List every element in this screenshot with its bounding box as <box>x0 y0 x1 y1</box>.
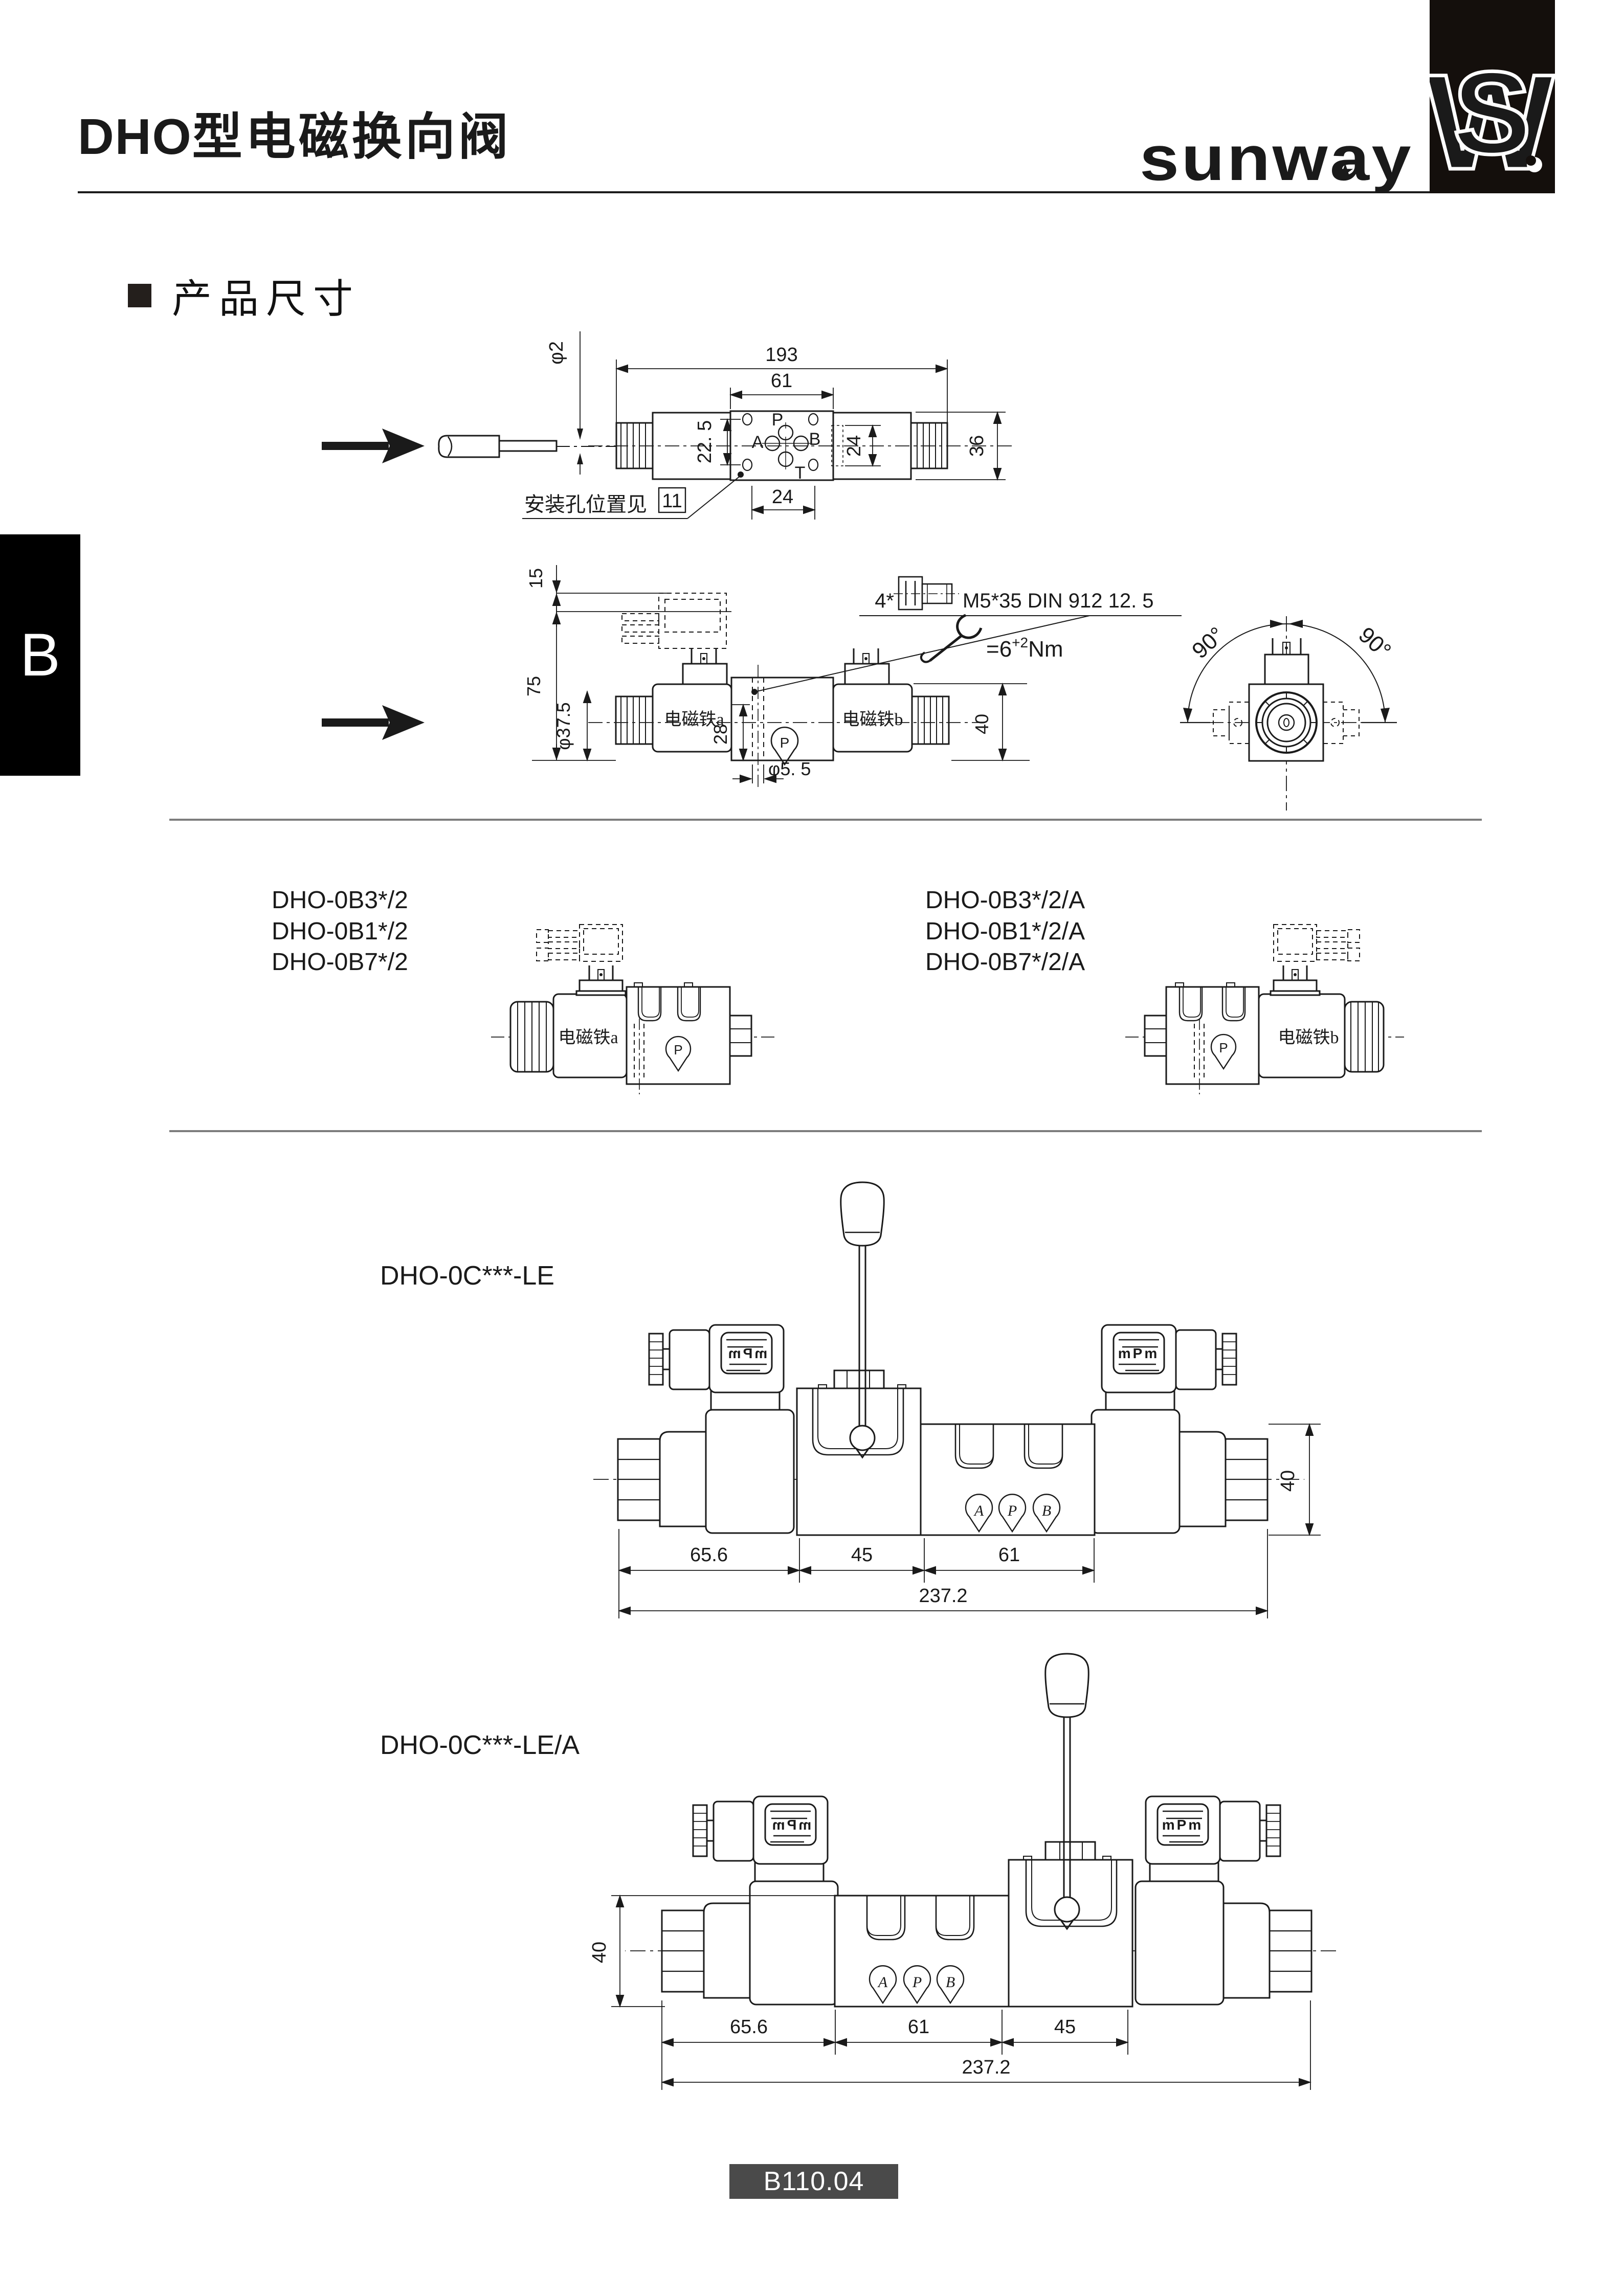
monogram-s: S <box>1453 47 1531 178</box>
model-0b3-2: DHO-0B3*/2 <box>272 887 408 914</box>
torque-label: =6+2Nm <box>986 635 1063 662</box>
dim-phi5-5-label: φ5. 5 <box>768 758 811 779</box>
dim-75-label: 75 <box>523 676 544 696</box>
dim-237-2-label: 237.2 <box>962 2057 1010 2078</box>
model-0b7-2: DHO-0B7*/2 <box>272 949 408 976</box>
dim-65-6-label: 65.6 <box>690 1544 728 1566</box>
wrench-icon <box>921 615 981 662</box>
dim-61-label: 61 <box>771 370 792 392</box>
port-p-letter: P <box>780 735 790 751</box>
mounting-note-ref: 11 <box>662 490 682 512</box>
connector-alt-position-dashed <box>622 593 726 648</box>
port-p-label: P <box>772 410 784 430</box>
brand-emblem-box: W S <box>1430 0 1555 193</box>
dim-45-label: 45 <box>851 1544 873 1566</box>
mounting-note-text: 安装孔位置见 <box>524 493 647 516</box>
page-number-badge: B110.04 <box>729 2164 898 2199</box>
valve-0b2a <box>1125 925 1404 1094</box>
dim-phi37-5-label: φ37.5 <box>553 702 574 750</box>
view-direction-arrow-icon <box>322 705 425 740</box>
view-direction-arrow-icon <box>322 429 425 463</box>
port-a-letter: A <box>973 1502 984 1519</box>
valve-lea <box>625 1654 1336 2007</box>
dim-40-label: 40 <box>589 1942 610 1963</box>
brand-logotype: sunway ★ <box>1137 123 1423 189</box>
dim-61-label: 61 <box>908 2016 929 2038</box>
section-bullet <box>128 284 151 307</box>
valve-le <box>593 1182 1304 1535</box>
port-a-letter: A <box>877 1974 888 1991</box>
socket-screw-icon <box>894 577 959 610</box>
dim-61-label: 61 <box>998 1544 1020 1566</box>
drawing-0b-models: DHO-0B3*/2 DHO-0B1*/2 DHO-0B7*/2 DHO-0B3… <box>230 869 1432 1110</box>
solenoid-a-label: 电磁铁a <box>664 710 724 729</box>
port-p-letter: P <box>674 1042 682 1057</box>
port-a-label: A <box>752 433 764 452</box>
dim-phi2-label: φ2 <box>546 341 567 365</box>
side-tab-label: B <box>20 620 60 690</box>
solenoid-a-label: 电磁铁a <box>558 1028 618 1047</box>
page-title: DHO型电磁换向阀 <box>78 111 511 163</box>
dim-phi2 <box>577 331 583 475</box>
dim-45-label: 45 <box>1054 2016 1076 2038</box>
port-t-label: T <box>795 463 806 483</box>
port-p-letter: P <box>912 1974 922 1991</box>
model-0b1-2a: DHO-0B1*/2/A <box>925 918 1085 945</box>
dim-24-bottom-label: 24 <box>772 486 793 508</box>
solenoid-b-label: 电磁铁b <box>1278 1028 1339 1047</box>
dim-15-label: 15 <box>525 568 546 589</box>
model-0b7-2a: DHO-0B7*/2/A <box>925 949 1085 976</box>
port-p-letter: P <box>1219 1040 1228 1055</box>
valve-0b2 <box>491 925 777 1094</box>
drawing-le-lea: DHO-0C***-LE mPm mPm A P B 40 65.6 45 61… <box>358 1166 1355 2112</box>
page-title-model: DHO <box>78 108 192 165</box>
dim-193-label: 193 <box>765 344 797 366</box>
dim-phi37-5 <box>532 691 616 760</box>
bolt-qty-label: 4* <box>875 590 894 612</box>
dim-24-right-label: 24 <box>843 435 865 457</box>
connector-brand-mirrored: mPm <box>726 1345 767 1361</box>
section-divider-2 <box>169 1130 1482 1132</box>
drawing-front-view: 15 75 φ37.5 28 φ5. 5 40 电磁铁a 电磁铁b P 4* M… <box>297 542 1422 828</box>
cable-plug <box>439 436 557 457</box>
solenoid-b-label: 电磁铁b <box>842 710 903 729</box>
brand-logotype-text: sunway <box>1140 123 1413 194</box>
star-icon: ★ <box>1336 160 1354 183</box>
model-0b3-2a: DHO-0B3*/2/A <box>925 887 1085 914</box>
dim-237-2-label: 237.2 <box>919 1585 967 1607</box>
bolt-spec-label: M5*35 DIN 912 12. 5 <box>963 590 1154 612</box>
section-title: 产品尺寸 <box>172 267 360 324</box>
dim-65-6-label: 65.6 <box>730 2016 768 2038</box>
connector-brand-mirrored: mPm <box>770 1817 811 1833</box>
port-b-letter: B <box>946 1974 955 1991</box>
port-b-letter: B <box>1042 1502 1051 1519</box>
model-lea-label: DHO-0C***-LE/A <box>380 1730 580 1760</box>
port-b-label: B <box>809 430 821 449</box>
section-header: 产品尺寸 <box>128 275 360 316</box>
connector-brand: mPm <box>1118 1345 1159 1361</box>
brand-emblem: W S <box>1430 0 1555 193</box>
catalog-page: DHO型电磁换向阀 sunway ★ W S 产品尺寸 B <box>0 0 1624 2296</box>
page-title-cn: 型电磁换向阀 <box>192 110 511 165</box>
port-p-letter: P <box>1007 1502 1017 1519</box>
dim-40-label: 40 <box>1277 1470 1299 1492</box>
dim-22-5-label: 22. 5 <box>694 420 716 464</box>
model-0b1-2: DHO-0B1*/2 <box>272 918 408 945</box>
connector-brand: mPm <box>1162 1817 1203 1833</box>
page-number: B110.04 <box>764 2166 864 2197</box>
dim-40-label: 40 <box>971 714 992 734</box>
section-divider-1 <box>169 819 1482 821</box>
side-tab-b: B <box>0 534 80 776</box>
dim-36-label: 36 <box>966 435 988 457</box>
model-le-label: DHO-0C***-LE <box>380 1261 554 1291</box>
rotate-left-label: 90° <box>1187 622 1229 664</box>
